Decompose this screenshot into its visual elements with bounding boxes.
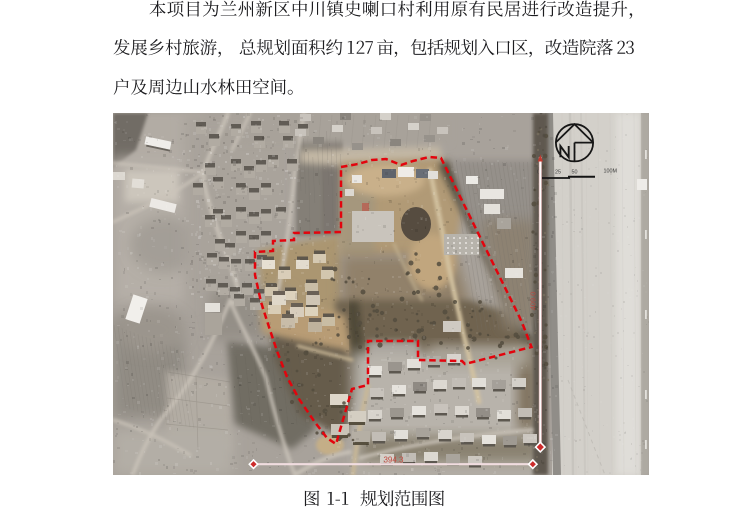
- svg-text:25: 25: [555, 170, 561, 176]
- svg-text:394.3: 394.3: [383, 456, 404, 465]
- svg-text:100M: 100M: [604, 169, 618, 175]
- svg-text:409.0: 409.0: [529, 292, 538, 311]
- svg-text:50: 50: [572, 170, 578, 176]
